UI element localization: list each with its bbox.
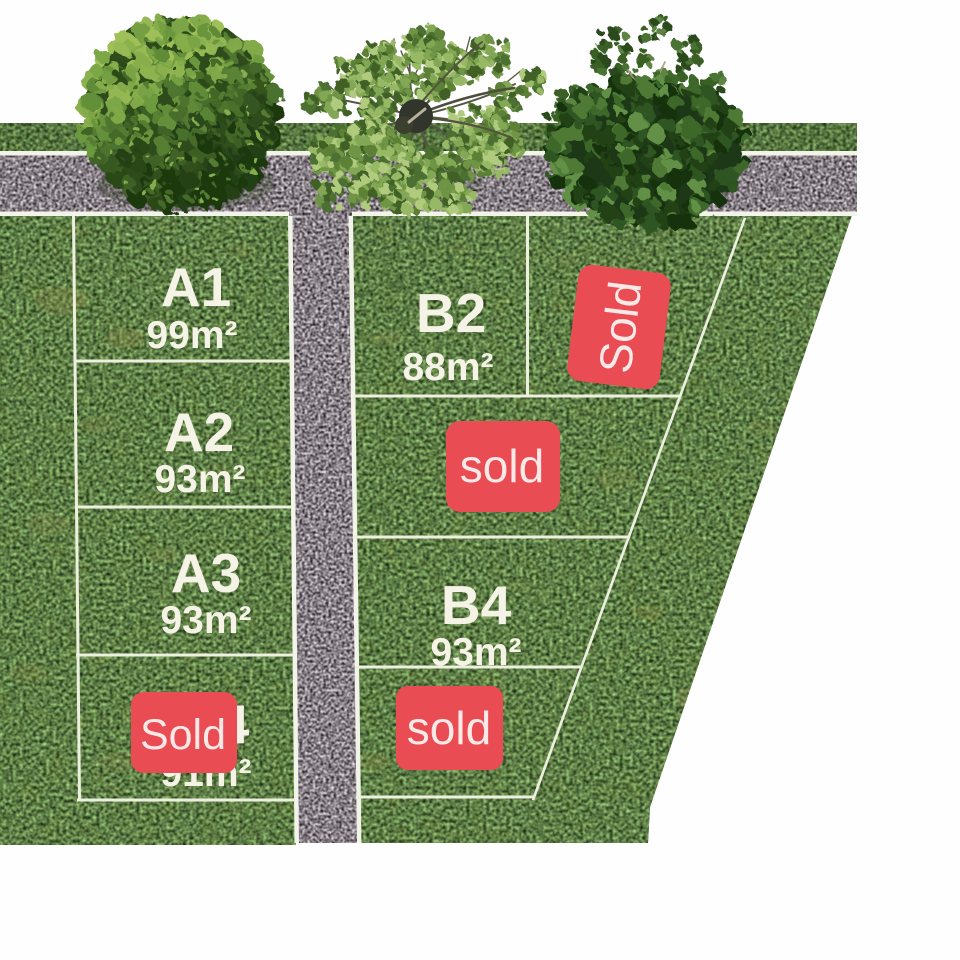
svg-text:93m²: 93m² xyxy=(160,599,251,642)
svg-text:A1: A1 xyxy=(161,256,231,318)
svg-text:93m²: 93m² xyxy=(154,458,245,501)
svg-text:93m²: 93m² xyxy=(430,631,521,674)
svg-text:sold: sold xyxy=(407,702,491,754)
svg-text:A2: A2 xyxy=(164,401,234,463)
svg-text:99m²: 99m² xyxy=(146,314,237,357)
svg-text:A3: A3 xyxy=(171,542,241,604)
svg-text:sold: sold xyxy=(460,440,544,492)
svg-text:B4: B4 xyxy=(441,574,512,636)
svg-text:Sold: Sold xyxy=(589,278,652,376)
svg-text:B2: B2 xyxy=(416,282,486,344)
svg-text:88m²: 88m² xyxy=(402,346,493,389)
svg-text:Sold: Sold xyxy=(140,711,226,759)
